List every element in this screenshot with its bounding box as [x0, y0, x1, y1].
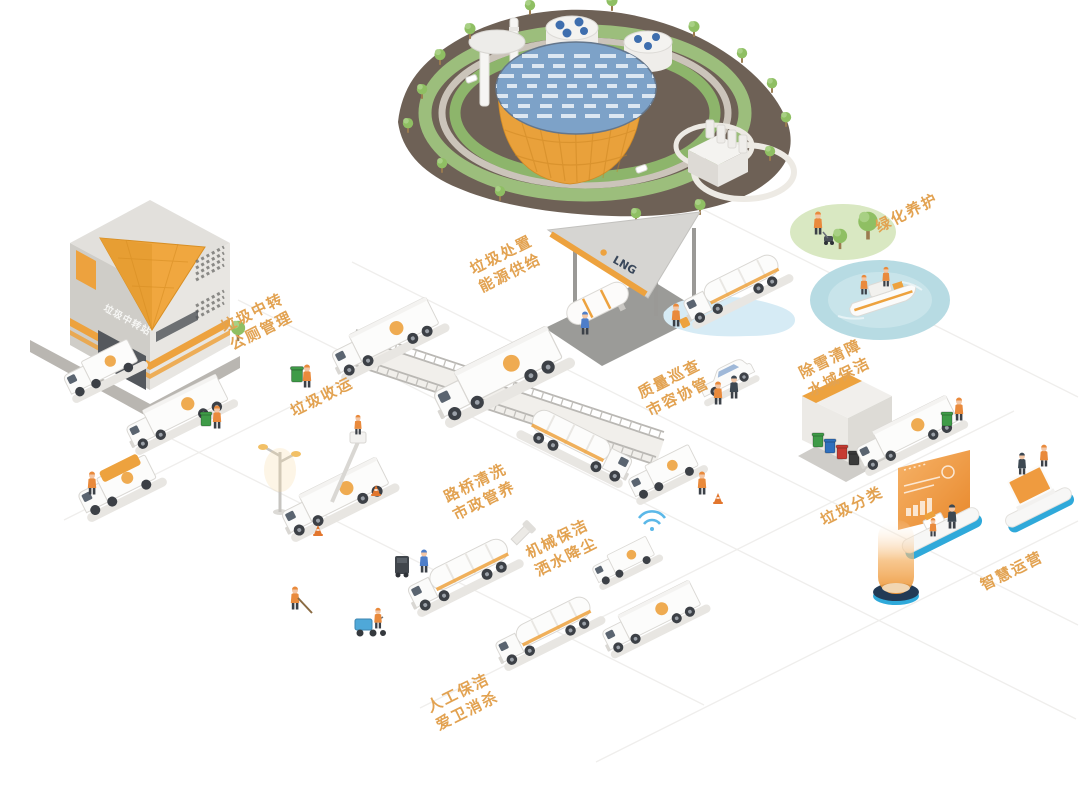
- water-puddle: [663, 297, 795, 337]
- traffic-cone-1: [713, 493, 723, 504]
- road-bridge-cluster: [258, 415, 401, 544]
- illustration-canvas: 垃圾中转站 LNG: [0, 0, 1080, 791]
- incineration-plant-island: [398, 0, 794, 223]
- water-cleaning-area: [810, 260, 950, 340]
- sorting-worker: [955, 398, 963, 421]
- loading-bin-green-2: [200, 412, 212, 426]
- manual-cluster: [291, 550, 428, 637]
- analyst-2: [1040, 445, 1048, 467]
- aerial-basket: [350, 432, 366, 443]
- tanker-truck-bottom: [490, 590, 607, 673]
- aerial-worker: [354, 415, 361, 435]
- smart-sweeper-truck: [588, 533, 664, 591]
- smart-sanitation-isometric-scene: 垃圾中转站 LNG: [0, 0, 1080, 791]
- disinfection-robot: [395, 556, 409, 578]
- sorting-bin-green: [941, 412, 953, 426]
- patrol-worker: [698, 472, 706, 495]
- sweeping-worker: [291, 587, 299, 610]
- lng-station: LNG: [545, 212, 706, 366]
- broom: [298, 598, 312, 613]
- smart-operations: [873, 445, 1076, 605]
- analyst-1: [1018, 453, 1026, 475]
- inspector-2: [730, 376, 738, 399]
- loading-worker-2: [213, 406, 221, 429]
- loading-worker-1: [303, 365, 311, 388]
- tricycle-rider: [374, 608, 382, 629]
- wifi-signal-icon: [639, 511, 665, 531]
- washing-truck-group: [663, 248, 795, 336]
- street-lamp: [258, 444, 301, 515]
- hologram-beacon: [873, 520, 919, 605]
- disinfection-worker: [420, 550, 428, 573]
- operator-platform-2: [990, 459, 1076, 535]
- loading-bin-green: [290, 367, 303, 382]
- garbage-truck-bottom: [595, 577, 711, 660]
